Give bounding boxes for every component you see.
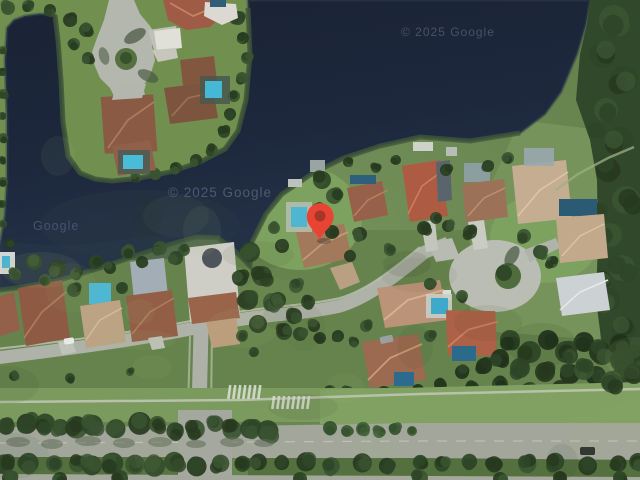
svg-text:© 2025 Google: © 2025 Google	[168, 185, 272, 200]
svg-text:© 2025 Google: © 2025 Google	[401, 25, 495, 39]
svg-text:Google: Google	[33, 219, 79, 233]
